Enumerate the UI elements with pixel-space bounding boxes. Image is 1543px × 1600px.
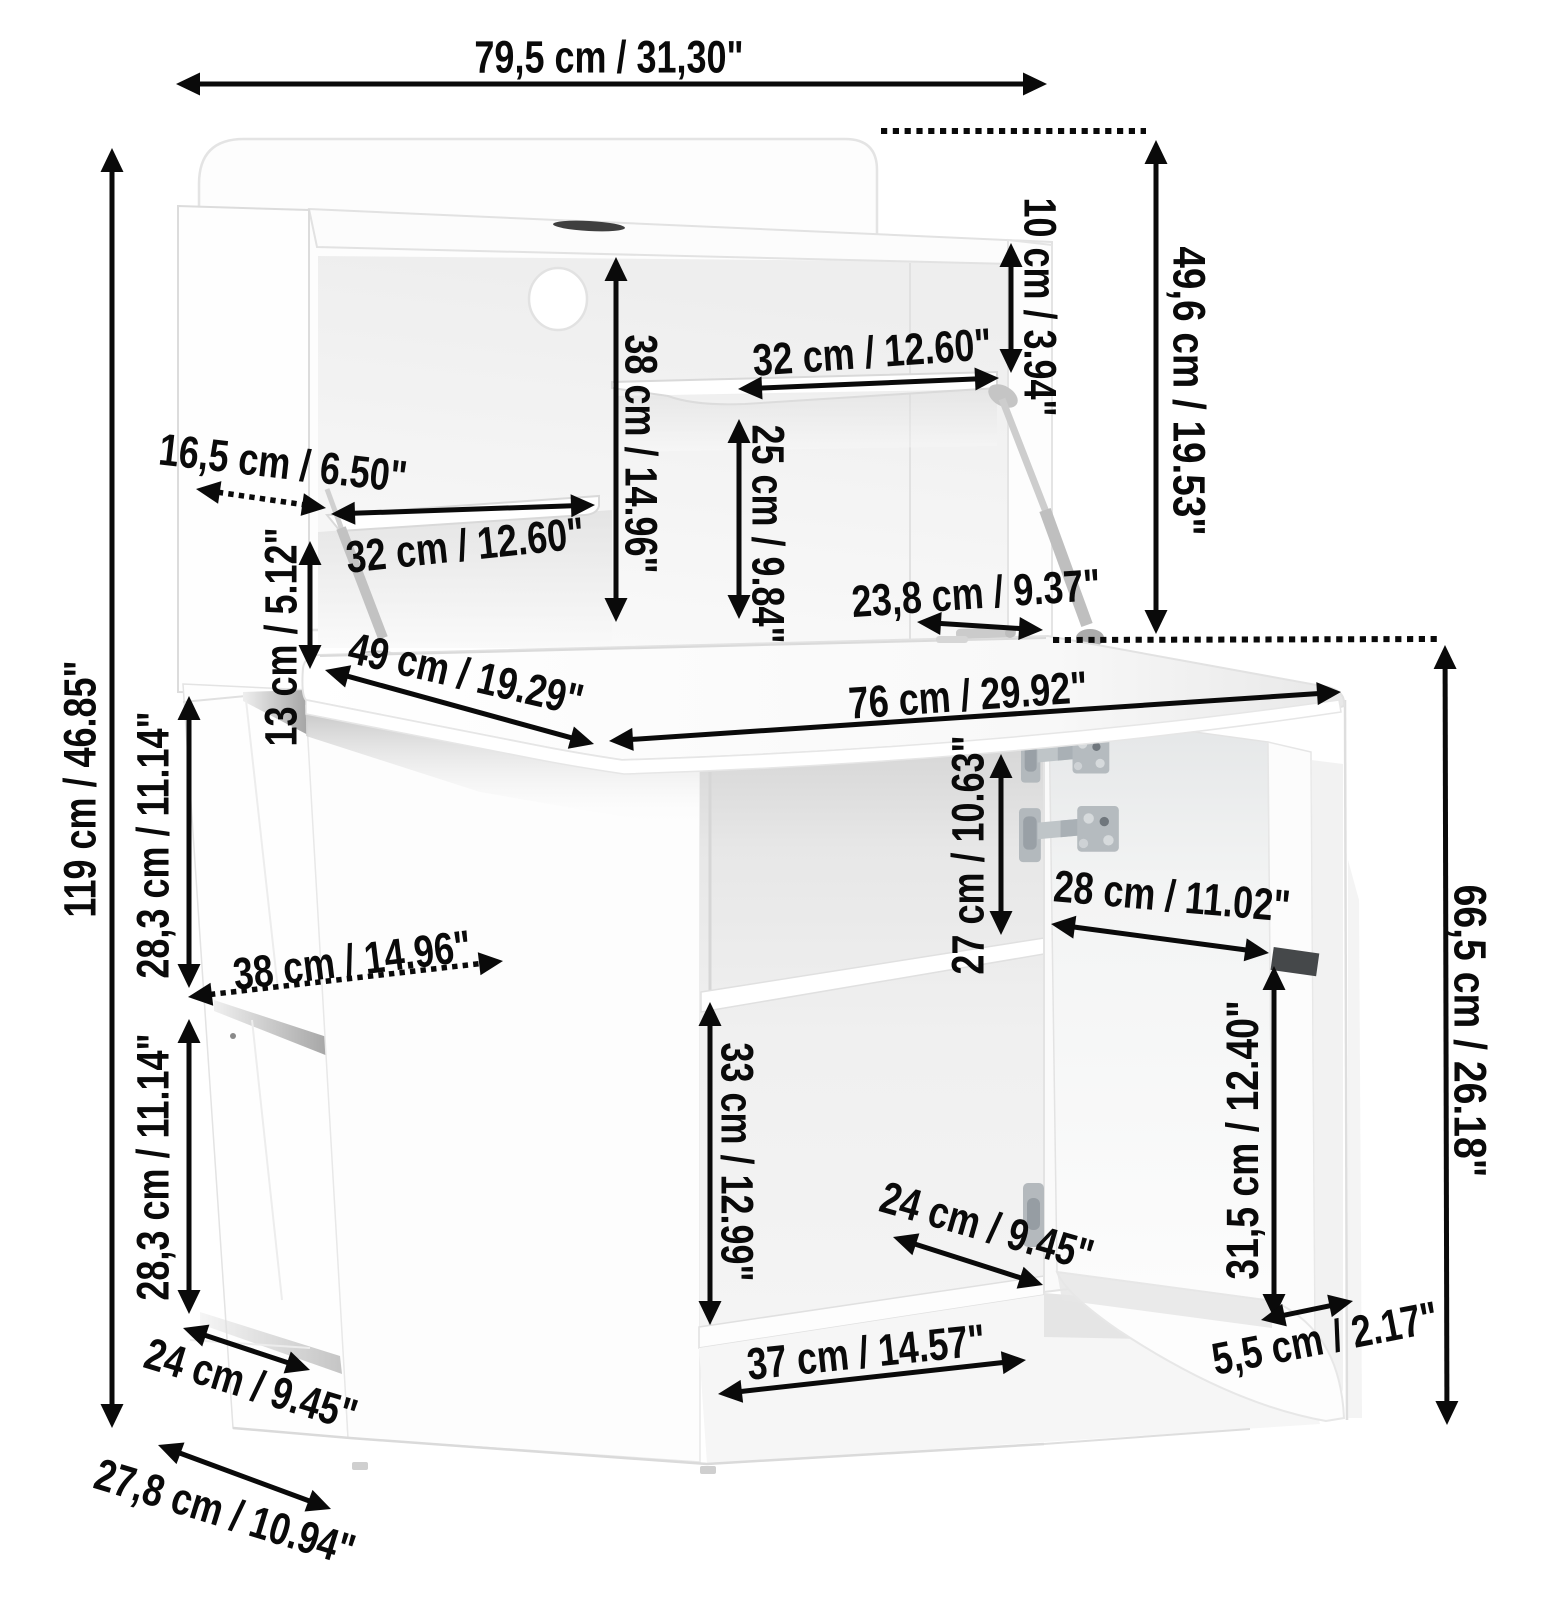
svg-text:31,5 cm / 12.40": 31,5 cm / 12.40" xyxy=(1218,1000,1268,1279)
svg-text:119 cm / 46.85": 119 cm / 46.85" xyxy=(55,660,106,917)
svg-text:33 cm / 12.99": 33 cm / 12.99" xyxy=(712,1042,763,1281)
svg-text:49,6 cm / 19.53": 49,6 cm / 19.53" xyxy=(1164,246,1214,535)
svg-text:27 cm / 10.63": 27 cm / 10.63" xyxy=(943,735,994,974)
svg-text:28,3 cm / 11.14": 28,3 cm / 11.14" xyxy=(128,1033,179,1300)
svg-text:10 cm / 3.94": 10 cm / 3.94" xyxy=(1015,197,1066,416)
svg-text:25 cm / 9.84": 25 cm / 9.84" xyxy=(743,424,794,643)
svg-text:38 cm / 14.96": 38 cm / 14.96" xyxy=(616,334,667,573)
svg-text:28,3 cm / 11.14": 28,3 cm / 11.14" xyxy=(128,711,179,978)
svg-text:66,5 cm / 26.18": 66,5 cm / 26.18" xyxy=(1445,885,1495,1178)
svg-text:79,5 cm / 31,30": 79,5 cm / 31,30" xyxy=(474,32,743,83)
svg-text:13 cm / 5.12": 13 cm / 5.12" xyxy=(256,527,307,746)
